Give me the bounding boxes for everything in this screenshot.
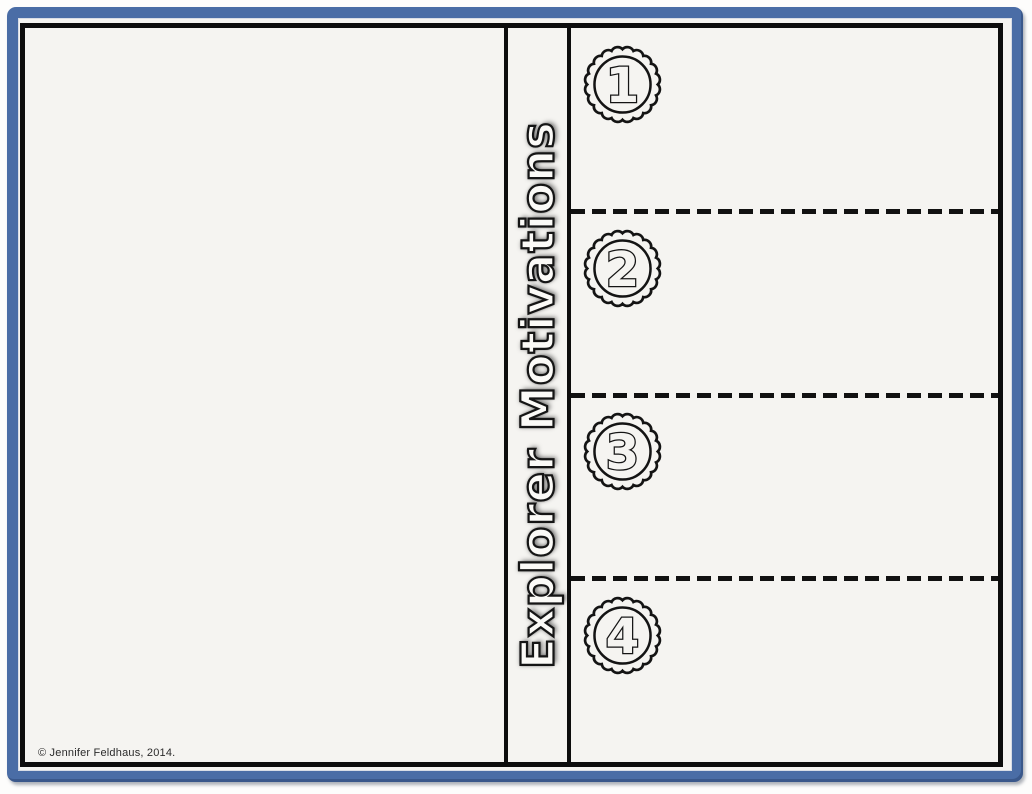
copyright-notice: © Jennifer Feldhaus, 2014. (38, 747, 175, 759)
badge-number: 1 (606, 58, 640, 114)
badge-number: 2 (606, 241, 640, 297)
worksheet-scan: © Jennifer Feldhaus, 2014. Explorer Moti… (0, 0, 1032, 794)
decorative-blue-frame: © Jennifer Feldhaus, 2014. Explorer Moti… (7, 7, 1023, 782)
foldable-template-sheet: © Jennifer Feldhaus, 2014. Explorer Moti… (20, 23, 1003, 767)
page-title: Explorer Motivations (511, 121, 564, 669)
writing-area-panel: © Jennifer Feldhaus, 2014. (25, 28, 508, 762)
title-strip: Explorer Motivations (508, 28, 571, 762)
numbered-sections-column: 1 2 3 (571, 28, 998, 762)
scalloped-number-badge-icon: 4 (579, 592, 666, 679)
section-4: 4 (571, 579, 998, 763)
dashed-section-divider (571, 393, 998, 398)
scalloped-number-badge-icon: 1 (579, 41, 666, 128)
badge-number: 4 (606, 608, 640, 664)
scalloped-number-badge-icon: 3 (579, 408, 666, 495)
section-2: 2 (571, 212, 998, 396)
dashed-section-divider (571, 209, 998, 214)
scalloped-number-badge-icon: 2 (579, 225, 666, 312)
section-3: 3 (571, 395, 998, 579)
badge-number: 3 (606, 425, 640, 481)
section-1: 1 (571, 28, 998, 212)
dashed-section-divider (571, 576, 998, 581)
